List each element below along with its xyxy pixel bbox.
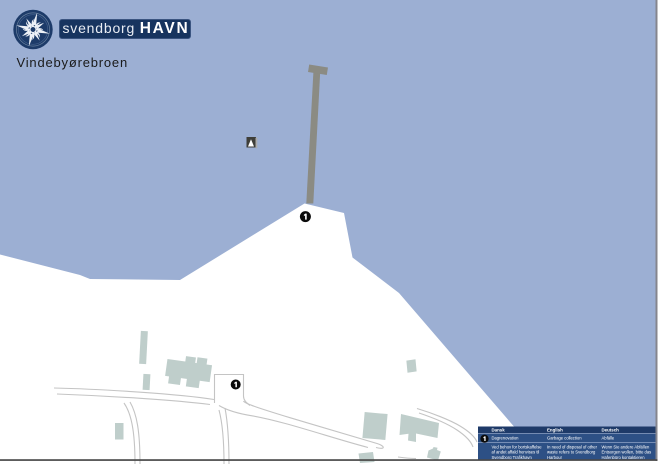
svg-text:Wenn Sie andere Abfällen: Wenn Sie andere Abfällen bbox=[602, 444, 651, 449]
svg-text:Ved behov for bortskaffelse: Ved behov for bortskaffelse bbox=[492, 444, 543, 449]
svg-text:Dansk: Dansk bbox=[492, 428, 506, 433]
svg-text:Entsorgen wollen, bitte das: Entsorgen wollen, bitte das bbox=[602, 450, 652, 455]
svg-text:Harbour: Harbour bbox=[547, 455, 563, 460]
svg-text:Abfälle: Abfälle bbox=[602, 435, 615, 440]
svg-text:English: English bbox=[547, 428, 563, 433]
svg-text:Hafenbüro kontaktieren: Hafenbüro kontaktieren bbox=[602, 455, 646, 460]
svg-text:af andet affald henvises til: af andet affald henvises til bbox=[492, 450, 540, 455]
svg-text:waste refers to Svendborg: waste refers to Svendborg bbox=[547, 450, 596, 455]
svg-text:Garbage collection: Garbage collection bbox=[547, 435, 582, 440]
svg-text:Dagrenovation: Dagrenovation bbox=[492, 435, 520, 440]
svg-text:In need of disposal of other: In need of disposal of other bbox=[547, 444, 598, 449]
svg-text:Deutsch: Deutsch bbox=[602, 428, 620, 433]
svg-text:Svendborg Trafikhavn: Svendborg Trafikhavn bbox=[492, 455, 533, 460]
